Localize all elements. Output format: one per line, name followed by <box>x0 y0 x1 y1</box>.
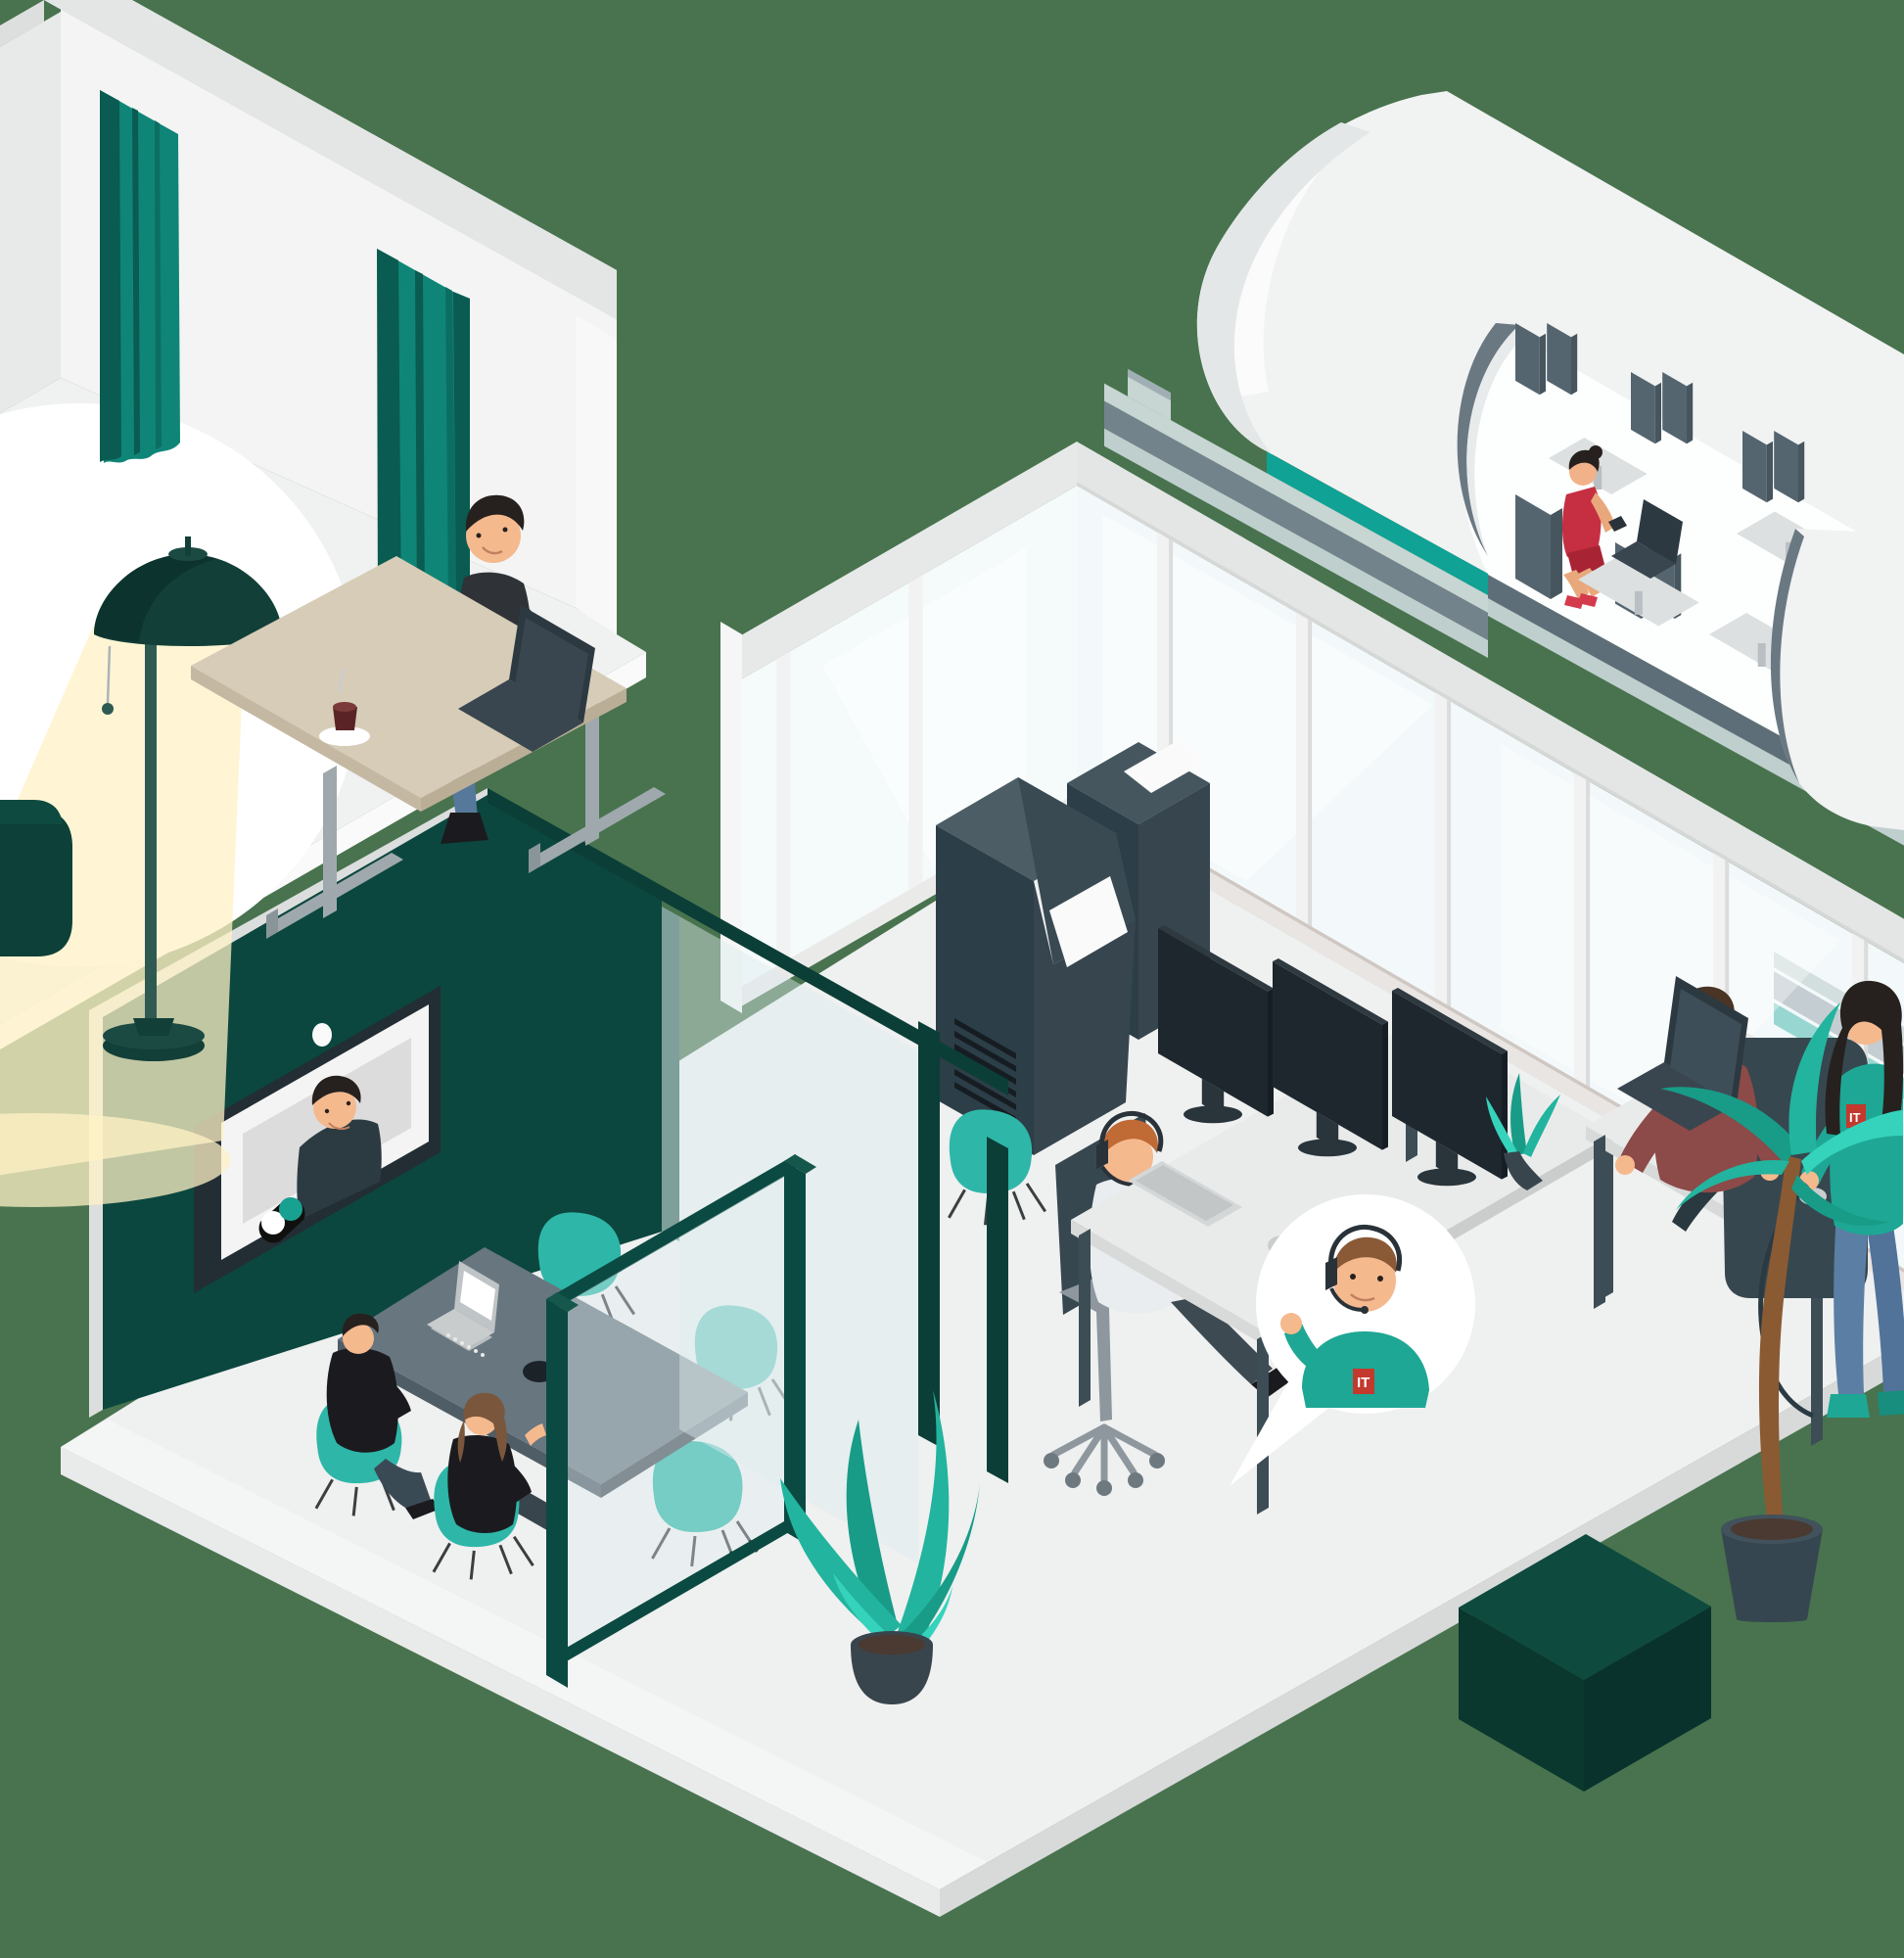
svg-text:IT: IT <box>1357 1375 1370 1391</box>
svg-text:IT: IT <box>1849 1110 1861 1125</box>
